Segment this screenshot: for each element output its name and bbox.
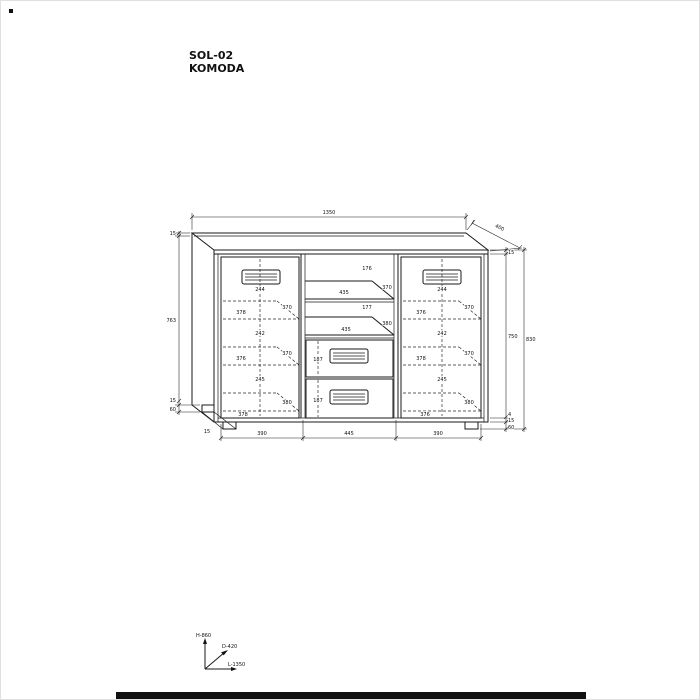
dim-bottom-right: 390: [433, 431, 443, 437]
dim-shelf-depth-1: 370: [382, 285, 392, 291]
dim-right-door-depth-2: 370: [464, 351, 474, 357]
dim-right-door-width-1: 376: [416, 310, 426, 316]
dim-right-bottom-panel: 15: [508, 418, 514, 424]
dim-right-overall-height: 830: [526, 337, 536, 343]
dim-left-leg-height: 60: [170, 407, 176, 413]
dim-right-door-height-1: 244: [437, 287, 447, 293]
right-door: 244 242 245 376 378 376 370 370 380: [401, 257, 481, 418]
dim-bottom-middle: 445: [344, 431, 354, 437]
right-door-front: [401, 257, 481, 418]
left-door-handle: [242, 270, 280, 284]
back-left-leg: [202, 405, 214, 412]
dim-left-top-thickness: 15: [170, 231, 176, 237]
dim-shelf-width-1: 435: [339, 290, 349, 296]
axis-length-label: L-1350: [228, 662, 245, 668]
model-code: SOL-02: [189, 49, 233, 62]
top-width-dimension: 1350: [190, 210, 468, 230]
dim-right-top-thickness: 15: [508, 250, 514, 256]
dim-left-door-height-2: 242: [255, 331, 265, 337]
dim-drawer-height-1: 187: [313, 357, 323, 363]
footer-bar: [116, 692, 586, 700]
dim-shelf-depth-2: 380: [382, 321, 392, 327]
dim-left-bottom-panel: 15: [170, 398, 176, 404]
axis-depth-label: D-420: [222, 644, 237, 650]
dim-right-door-depth-1: 370: [464, 305, 474, 311]
dim-left-door-width-3: 378: [238, 412, 248, 418]
dim-right-door-width-3: 376: [420, 412, 430, 418]
dim-right-door-width-2: 378: [416, 356, 426, 362]
product-name: KOMODA: [189, 62, 245, 75]
drawing-page: SOL-02 KOMODA: [0, 0, 700, 700]
dim-left-door-width-2: 376: [236, 356, 246, 362]
dim-right-door-depth-3: 380: [464, 400, 474, 406]
dim-shelf-height-2: 177: [362, 305, 372, 311]
bottom-dimension-chain: 390 445 390: [219, 420, 483, 441]
dim-top-width: 1350: [323, 210, 336, 216]
middle-section: 176 435 370 177 435 380 187 187: [305, 266, 394, 418]
dim-top-depth: 400: [494, 223, 505, 233]
dim-bottom-left: 390: [257, 431, 267, 437]
front-right-leg: [465, 422, 478, 429]
front-left-leg: [223, 422, 236, 429]
drawer-1-handle: [330, 349, 368, 363]
drawer-2-handle: [330, 390, 368, 404]
dim-right-interior-height: 750: [508, 334, 518, 340]
dim-leg-detail: 15: [204, 429, 210, 435]
dim-shelf-width-2: 435: [341, 327, 351, 333]
top-panel: [192, 233, 488, 250]
title-block: SOL-02 KOMODA: [189, 49, 245, 75]
dim-left-door-width-1: 378: [236, 310, 246, 316]
dim-left-door-height-3: 245: [255, 377, 265, 383]
dim-left-door-depth-2: 370: [282, 351, 292, 357]
dim-right-leg-height: 60: [508, 425, 514, 431]
dim-drawer-height-2: 187: [313, 398, 323, 404]
corner-mark: [9, 9, 13, 13]
open-shelf-1: [305, 281, 394, 302]
left-door: 244 242 245 378 376 378 370 370 380: [221, 257, 299, 418]
dim-left-door-depth-1: 370: [282, 305, 292, 311]
dim-shelf-height-1: 176: [362, 266, 372, 272]
axis-legend: H-860 D-420 L-1350: [196, 633, 245, 671]
dim-right-door-height-3: 245: [437, 377, 447, 383]
top-depth-dimension: 400: [467, 220, 522, 251]
dim-left-door-depth-3: 380: [282, 400, 292, 406]
dim-right-door-height-2: 242: [437, 331, 447, 337]
technical-drawing: SOL-02 KOMODA: [1, 1, 700, 700]
dim-left-body-height: 763: [166, 318, 176, 324]
axis-height-label: H-860: [196, 633, 211, 639]
dim-left-door-height-1: 244: [255, 287, 265, 293]
left-dimension-chain: 15 763 15 60: [166, 231, 200, 415]
